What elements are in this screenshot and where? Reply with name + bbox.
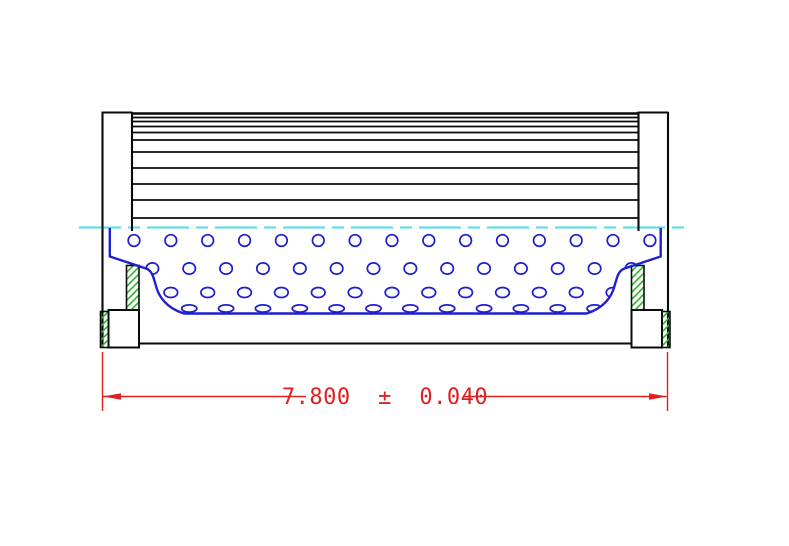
perforation-hole <box>294 263 306 274</box>
dimension-text: 7.800 ± 0.040 <box>282 385 488 410</box>
perforation-hole <box>255 305 270 312</box>
perforation-hole <box>330 263 342 274</box>
dimension-arrowhead <box>649 393 667 400</box>
perforation-hole <box>276 235 288 247</box>
perforation-hole <box>513 305 528 312</box>
perforation-hole <box>404 263 416 274</box>
perforation-hole <box>441 263 453 274</box>
filter-element-section-drawing: 7.800 ± 0.040 <box>0 0 789 546</box>
seal-hatch-block <box>662 312 670 348</box>
perforation-hole <box>569 288 583 298</box>
perforation-hole <box>202 235 214 247</box>
perforation-hole <box>496 288 510 298</box>
perforation-hole <box>349 235 361 247</box>
perforation-hole <box>497 235 509 247</box>
perforation-hole <box>422 288 436 298</box>
perforation-hole <box>533 288 547 298</box>
perforation-hole <box>476 305 491 312</box>
perforation-hole <box>534 235 546 247</box>
perforation-hole <box>312 235 324 247</box>
perforation-hole <box>386 235 398 247</box>
perforation-hole <box>643 288 657 298</box>
perforation-hole <box>367 263 379 274</box>
perforation-hole <box>238 288 252 298</box>
end-cap-foot-box <box>632 310 663 348</box>
perforation-hole <box>219 305 234 312</box>
dimension-arrowhead <box>103 393 121 400</box>
perforation-hole <box>128 235 140 247</box>
pleated-media-lines <box>132 114 639 219</box>
perforation-hole <box>403 305 418 312</box>
perforation-hole <box>182 305 197 312</box>
perforation-hole <box>644 235 656 247</box>
perforation-hole <box>165 235 177 247</box>
perforation-holes <box>127 235 657 312</box>
perforation-hole <box>348 288 362 298</box>
perforation-hole <box>550 305 565 312</box>
end-cap-foot-box <box>109 310 140 348</box>
perforation-hole <box>311 288 325 298</box>
perforation-hole <box>460 235 472 247</box>
perforation-hole <box>183 263 195 274</box>
perforation-hole <box>588 263 600 274</box>
perforation-hole <box>329 305 344 312</box>
length-dimension: 7.800 ± 0.040 <box>103 352 668 411</box>
perforation-hole <box>145 305 160 312</box>
perforation-hole <box>239 235 251 247</box>
perforated-core-tube <box>110 228 661 314</box>
core-outline <box>110 228 661 314</box>
perforation-hole <box>440 305 455 312</box>
perforation-hole <box>257 263 269 274</box>
perforation-hole <box>570 235 582 247</box>
technical-drawing-page: 7.800 ± 0.040 <box>0 0 789 546</box>
perforation-hole <box>459 288 473 298</box>
perforation-hole <box>552 263 564 274</box>
seal-hatch-block <box>127 266 140 311</box>
perforation-hole <box>292 305 307 312</box>
perforation-hole <box>385 288 399 298</box>
perforation-hole <box>366 305 381 312</box>
seal-hatch-block <box>101 312 109 348</box>
perforation-hole <box>478 263 490 274</box>
perforation-hole <box>220 263 232 274</box>
perforation-hole <box>201 288 215 298</box>
perforation-hole <box>423 235 435 247</box>
perforation-hole <box>275 288 289 298</box>
perforation-hole <box>607 235 619 247</box>
seal-hatch-block <box>632 266 645 311</box>
perforation-hole <box>515 263 527 274</box>
perforation-hole <box>164 288 178 298</box>
